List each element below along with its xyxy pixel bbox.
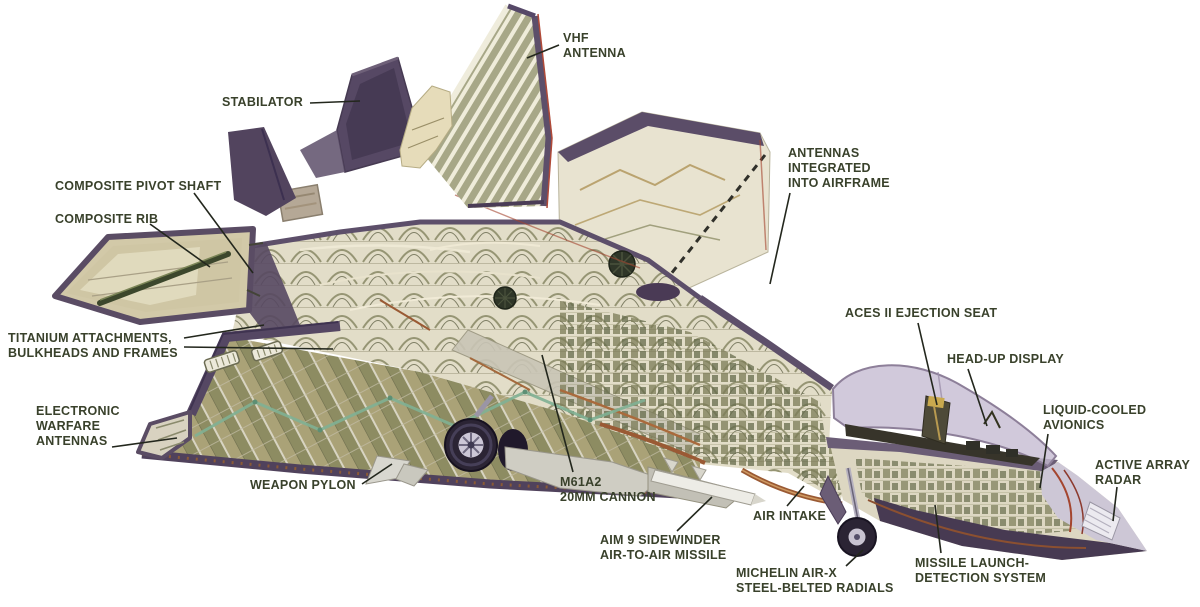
diagram-stage: VHFANTENNASTABILATORCOMPOSITE PIVOT SHAF… [0,0,1200,607]
label-antennas-integrated: ANTENNASINTEGRATEDINTO AIRFRAME [788,146,890,191]
label-liquid-cooled-avionics: LIQUID-COOLEDAVIONICS [1043,403,1146,433]
label-aim9-sidewinder: AIM 9 SIDEWINDERAIR-TO-AIR MISSILE [600,533,727,563]
leader-line-antennas-integrated [770,193,790,284]
label-electronic-warfare-antennas: ELECTRONICWARFAREANTENNAS [36,404,120,449]
label-line: DETECTION SYSTEM [915,571,1046,586]
label-line: ACES II EJECTION SEAT [845,306,997,321]
label-line: ANTENNA [563,46,626,61]
label-active-array-radar: ACTIVE ARRAYRADAR [1095,458,1190,488]
label-line: ANTENNAS [788,146,890,161]
label-composite-rib: COMPOSITE RIB [55,212,158,227]
label-line: AIR-TO-AIR MISSILE [600,548,727,563]
leader-line-aim9-sidewinder [677,497,712,531]
label-air-intake: AIR INTAKE [753,509,826,524]
left-stabilator [228,127,296,216]
label-weapon-pylon: WEAPON PYLON [250,478,356,493]
label-line: MICHELIN AIR-X [736,566,894,581]
label-line: AIR INTAKE [753,509,826,524]
label-line: STEEL-BELTED RADIALS [736,581,894,596]
label-aces-ejection-seat: ACES II EJECTION SEAT [845,306,997,321]
label-line: BULKHEADS AND FRAMES [8,346,178,361]
label-line: ACTIVE ARRAY [1095,458,1190,473]
label-line: HEAD-UP DISPLAY [947,352,1064,367]
label-m61a2-cannon: M61A220MM CANNON [560,475,656,505]
label-line: MISSILE LAUNCH- [915,556,1046,571]
label-line: AVIONICS [1043,418,1146,433]
label-line: TITANIUM ATTACHMENTS, [8,331,178,346]
label-line: ELECTRONIC [36,404,120,419]
label-composite-pivot-shaft: COMPOSITE PIVOT SHAFT [55,179,221,194]
f22-cutaway-illustration [0,0,1200,607]
label-line: LIQUID-COOLED [1043,403,1146,418]
label-line: STABILATOR [222,95,303,110]
label-line: VHF [563,31,626,46]
label-line: WARFARE [36,419,120,434]
label-line: INTO AIRFRAME [788,176,890,191]
label-line: INTEGRATED [788,161,890,176]
label-line: WEAPON PYLON [250,478,356,493]
label-line: M61A2 [560,475,656,490]
label-line: COMPOSITE RIB [55,212,158,227]
label-missile-launch-detection: MISSILE LAUNCH-DETECTION SYSTEM [915,556,1046,586]
label-line: 20MM CANNON [560,490,656,505]
label-line: AIM 9 SIDEWINDER [600,533,727,548]
label-vhf-antenna: VHFANTENNA [563,31,626,61]
label-head-up-display: HEAD-UP DISPLAY [947,352,1064,367]
label-line: RADAR [1095,473,1190,488]
label-line: ANTENNAS [36,434,120,449]
label-line: COMPOSITE PIVOT SHAFT [55,179,221,194]
label-titanium-attachments: TITANIUM ATTACHMENTS,BULKHEADS AND FRAME… [8,331,178,361]
label-michelin-radials: MICHELIN AIR-XSTEEL-BELTED RADIALS [736,566,894,596]
label-stabilator: STABILATOR [222,95,303,110]
